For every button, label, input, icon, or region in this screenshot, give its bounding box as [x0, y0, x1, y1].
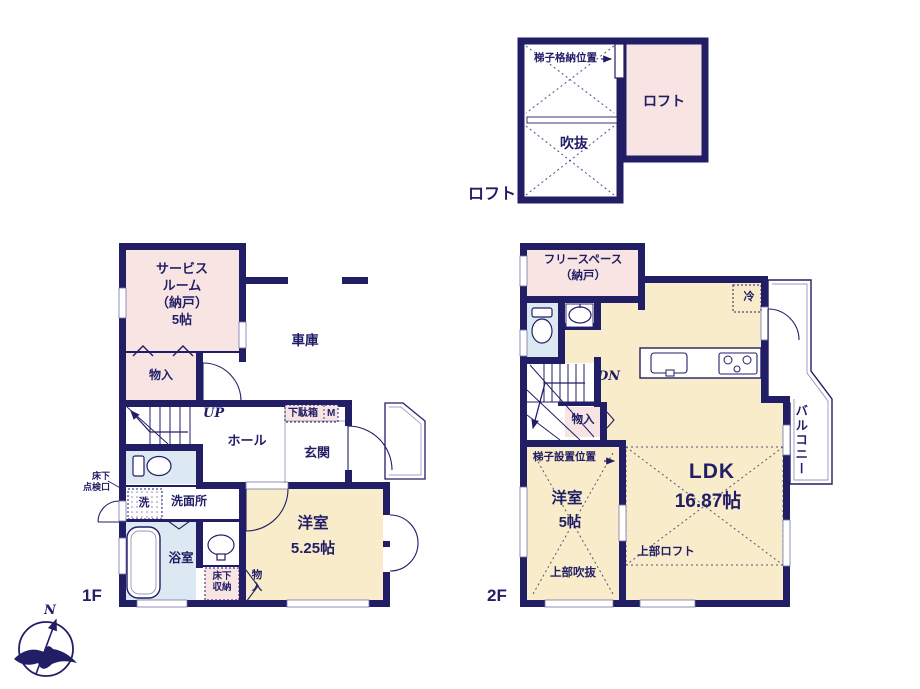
ladder-position-label: 梯子設置位置 [533, 451, 596, 465]
hall-label: ホール [227, 433, 266, 450]
bathroom-label: 浴室 [168, 550, 193, 566]
balcony-label: バルコニー [792, 404, 808, 477]
floor2-label: 2F [487, 585, 507, 607]
western-room1-french-door-lower [390, 543, 418, 571]
ldk-size-label: 16.87帖 [675, 490, 742, 515]
loft-room-label: ロフト [643, 92, 685, 110]
compass [14, 620, 77, 676]
western-room1-label: 洋室 [297, 514, 328, 534]
washroom-label: 洗面所 [171, 494, 207, 510]
toilet1-icon [133, 456, 171, 476]
underfloor-hatch-label: 床下 点検口 [72, 471, 110, 494]
bathtub-icon [127, 527, 160, 598]
free-space-label: フリースペース （納戸） [544, 252, 623, 284]
ladder-storage-marker [615, 44, 624, 78]
closet-lower-label: 物 入 [252, 569, 263, 593]
floor-plan-page: ロフト 梯子格納位置 吹抜 ロフト サービス ルーム （納戸） 5帖 物入 車庫… [0, 0, 920, 689]
entrance-porch [385, 403, 425, 479]
void-label: 吹抜 [560, 134, 588, 152]
ladder-storage-label: 梯子格納位置 [534, 52, 597, 66]
floor1-label: 1F [82, 585, 102, 607]
washroom-exterior-door-arc [98, 501, 119, 522]
closet2-label: 物入 [572, 413, 595, 428]
floor1-plan [98, 243, 425, 607]
service-room-label: サービス ルーム （納戸） 5帖 [156, 261, 208, 329]
floor-plan-drawing [0, 0, 920, 689]
western-room1-french-door-upper [390, 515, 418, 543]
washer-label: 洗 [139, 496, 150, 510]
western-room2-size-label: 5帖 [559, 514, 582, 533]
western-room2-label: 洋室 [551, 489, 582, 509]
loft-above-label: 上部ロフト [637, 545, 695, 560]
stairs-up-label: UP [203, 406, 224, 423]
ldk-label: LDK [689, 458, 735, 485]
entrance-label: 玄関 [304, 445, 330, 462]
garage-label: 車庫 [292, 332, 319, 350]
toilet2-icon [532, 308, 552, 343]
shoe-cabinet-m-label: M [327, 407, 335, 420]
shoe-cabinet-label: 下駄箱 [288, 407, 318, 420]
loft-divider [527, 117, 617, 123]
kitchen-counter [640, 348, 761, 378]
stove-icon [719, 353, 757, 374]
open-ceiling-above-label: 上部吹抜 [550, 566, 596, 581]
vanity-sink-icon [208, 535, 234, 560]
refrigerator-label: 冷 [744, 290, 755, 304]
stairs-down-label: DN [597, 369, 620, 386]
underfloor-storage-label: 床下 収納 [212, 571, 231, 594]
loft-floor-label: ロフト [468, 185, 516, 206]
western-room1-size-label: 5.25帖 [291, 539, 335, 559]
stairs-up [127, 407, 190, 444]
washbasin-icon [566, 304, 593, 327]
garage-door-arc [203, 363, 241, 401]
compass-north-label: N [44, 603, 56, 620]
closet-upper-label: 物入 [149, 368, 173, 384]
